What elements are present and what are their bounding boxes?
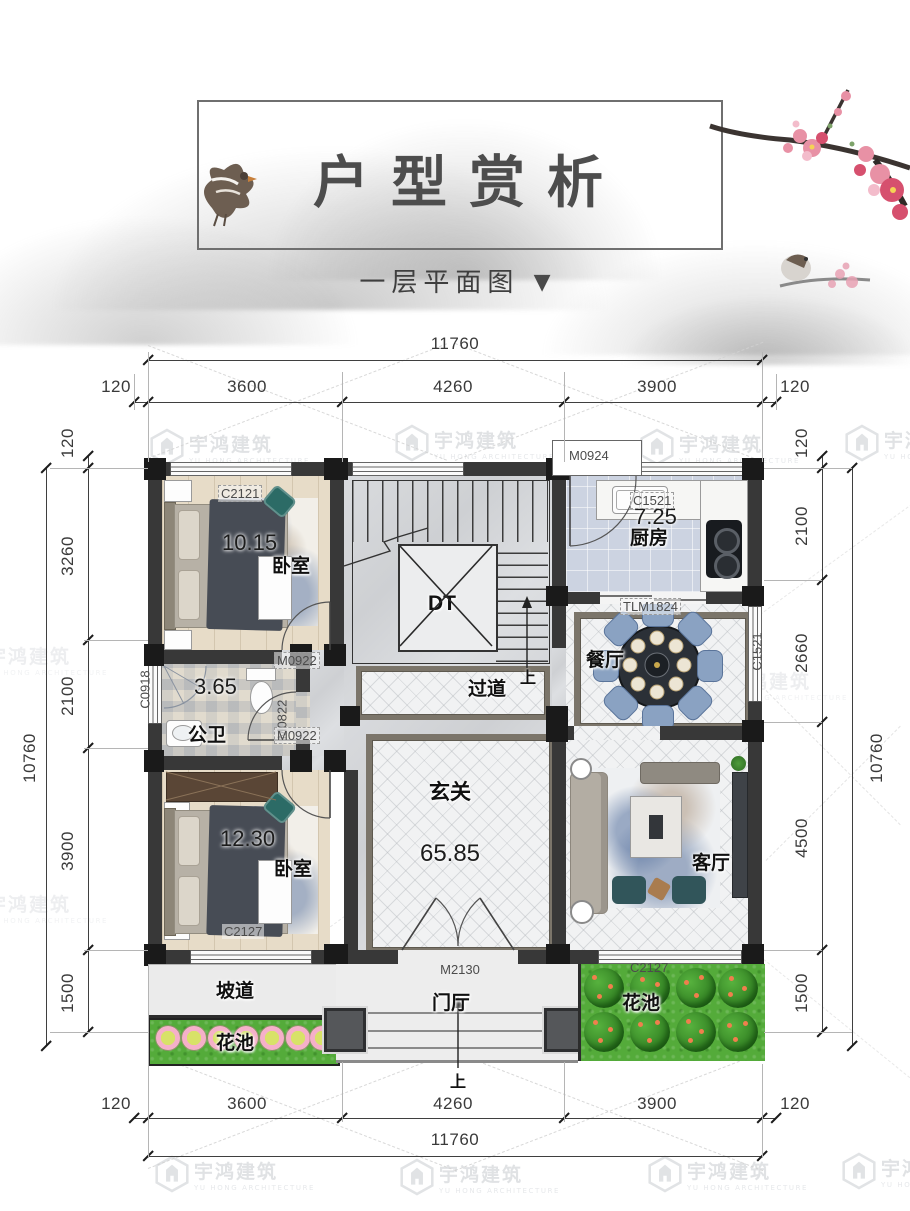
c0918-label: C0918: [138, 658, 153, 722]
dim-top-0: 120: [96, 377, 136, 397]
bedroom2-area: 12.30: [220, 826, 275, 852]
flowerbed-right-label: 花池: [622, 988, 660, 1015]
witness-line: [148, 966, 149, 1158]
dimline: [852, 468, 853, 1046]
bathroom-area: 3.65: [194, 674, 237, 700]
dim-right-overall: 10760: [867, 728, 887, 788]
stairs-up-label: 上: [520, 664, 536, 688]
bedroom1-label: 卧室: [272, 551, 310, 578]
foyer-label: 玄关: [412, 776, 488, 806]
dim-bot-1: 3600: [212, 1094, 282, 1114]
entry-up-label: 上: [450, 1068, 466, 1092]
porch-label: 门厅: [432, 988, 470, 1015]
dimline: [134, 1118, 776, 1119]
witness-line: [762, 1064, 763, 1158]
dim-right-2: 2660: [792, 623, 812, 683]
witness-line: [84, 748, 148, 749]
dim-top-overall: 11760: [420, 334, 490, 354]
dim-top-1: 3600: [212, 377, 282, 397]
dim-top-3: 3900: [622, 377, 692, 397]
dim-right-1: 2100: [792, 496, 812, 556]
dimline: [134, 402, 776, 403]
m0922-top-label: M0922: [274, 652, 320, 669]
dim-left-0: 120: [58, 413, 78, 473]
witness-line: [564, 372, 565, 462]
dining-label: 餐厅: [586, 645, 624, 672]
dim-top-2: 4260: [418, 377, 488, 397]
dim-left-overall: 10760: [20, 728, 40, 788]
tlm1824-label: TLM1824: [620, 598, 681, 615]
witness-line: [764, 580, 822, 581]
flowerbed-left-label: 花池: [216, 1028, 254, 1055]
dimline: [822, 456, 823, 1032]
dim-bot-3: 3900: [622, 1094, 692, 1114]
witness-line: [342, 1062, 343, 1122]
dimline: [148, 360, 762, 361]
witness-line: [776, 374, 777, 410]
dim-right-3: 4500: [792, 808, 812, 868]
ramp-label: 坡道: [216, 976, 254, 1003]
bedroom1-area: 10.15: [222, 530, 277, 556]
witness-line: [564, 1062, 565, 1122]
corridor-label: 过道: [468, 674, 506, 701]
dim-bottom-overall: 11760: [420, 1130, 490, 1150]
witness-line: [764, 950, 822, 951]
dim-left-1: 3260: [58, 526, 78, 586]
witness-line: [342, 372, 343, 462]
m0922-bottom-label: M0922: [274, 727, 320, 744]
c1521-top-label: C1521: [630, 492, 674, 509]
dim-left-4: 1500: [58, 963, 78, 1023]
dim-bot-2: 4260: [418, 1094, 488, 1114]
foyer-area: 65.85: [412, 840, 488, 868]
plan-linework: [0, 0, 910, 1211]
dim-left-3: 3900: [58, 821, 78, 881]
witness-line: [50, 468, 148, 469]
dimline: [46, 468, 47, 1046]
m2130-label: M2130: [426, 962, 494, 977]
witness-line: [134, 374, 135, 410]
dim-right-4: 1500: [792, 963, 812, 1023]
c2127-right-label: C2127: [628, 960, 670, 975]
dim-bot-0: 120: [96, 1094, 136, 1114]
kitchen-label: 厨房: [630, 523, 668, 550]
dim-right-0: 120: [792, 413, 812, 473]
floorplan-poster: { "header": { "title": "户型赏析", "subtitle…: [0, 0, 910, 1211]
witness-line: [148, 352, 149, 462]
dim-left-2: 2100: [58, 666, 78, 726]
dimline: [148, 1156, 762, 1157]
bathroom-label: 公卫: [188, 720, 226, 747]
witness-line: [50, 1032, 148, 1033]
witness-line: [762, 352, 763, 462]
dim-top-4: 120: [775, 377, 815, 397]
dim-bot-4: 120: [775, 1094, 815, 1114]
witness-line: [764, 722, 822, 723]
witness-line: [84, 950, 148, 951]
c2127-left-label: C2127: [222, 924, 264, 939]
witness-line: [84, 640, 148, 641]
witness-line: [764, 468, 852, 469]
bedroom2-label: 卧室: [274, 854, 312, 881]
c2121-label: C2121: [218, 485, 262, 502]
witness-line: [764, 1032, 852, 1033]
c1521-right-label: C1521: [750, 620, 765, 684]
living-label: 客厅: [692, 848, 730, 875]
